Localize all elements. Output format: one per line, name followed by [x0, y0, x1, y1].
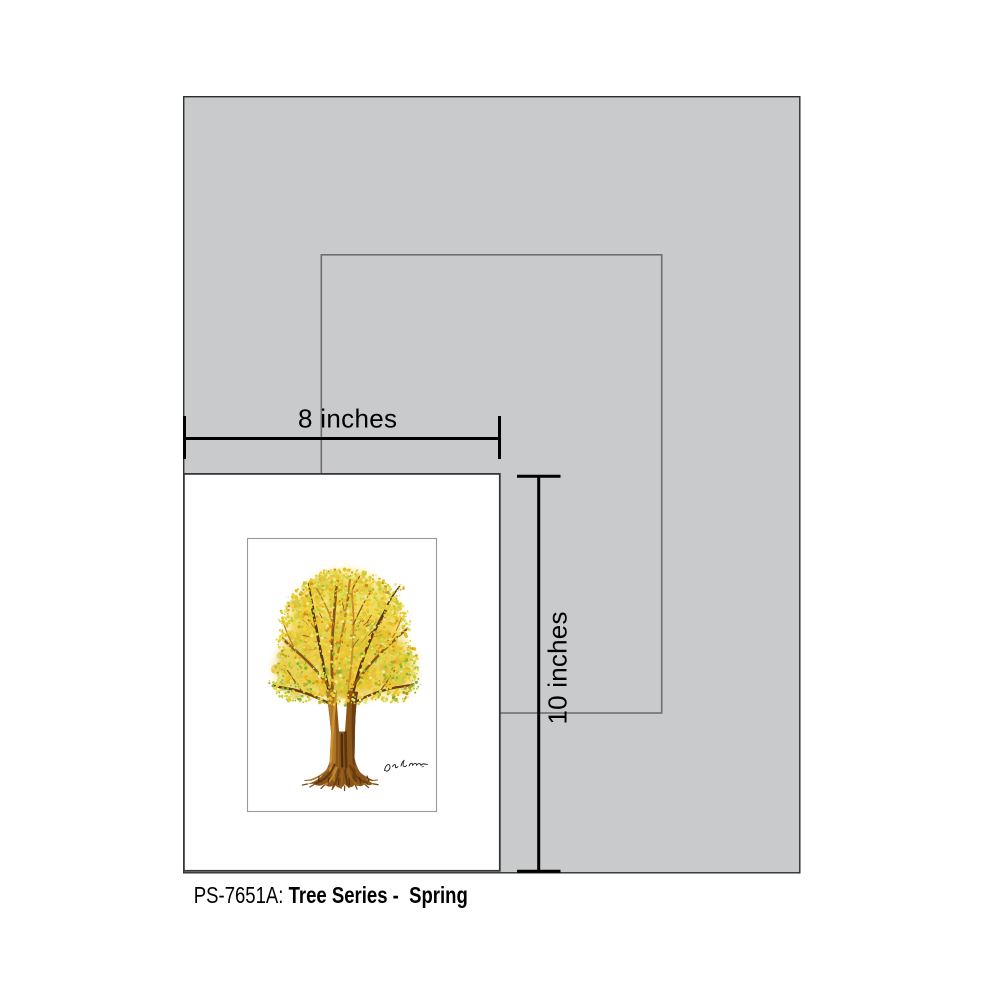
svg-text:8 inches: 8 inches [298, 403, 397, 433]
svg-text:PS-7651A: Tree Series - Sprin: PS-7651A: Tree Series - Spring [194, 883, 468, 909]
svg-text:10 inches: 10 inches [543, 612, 573, 725]
